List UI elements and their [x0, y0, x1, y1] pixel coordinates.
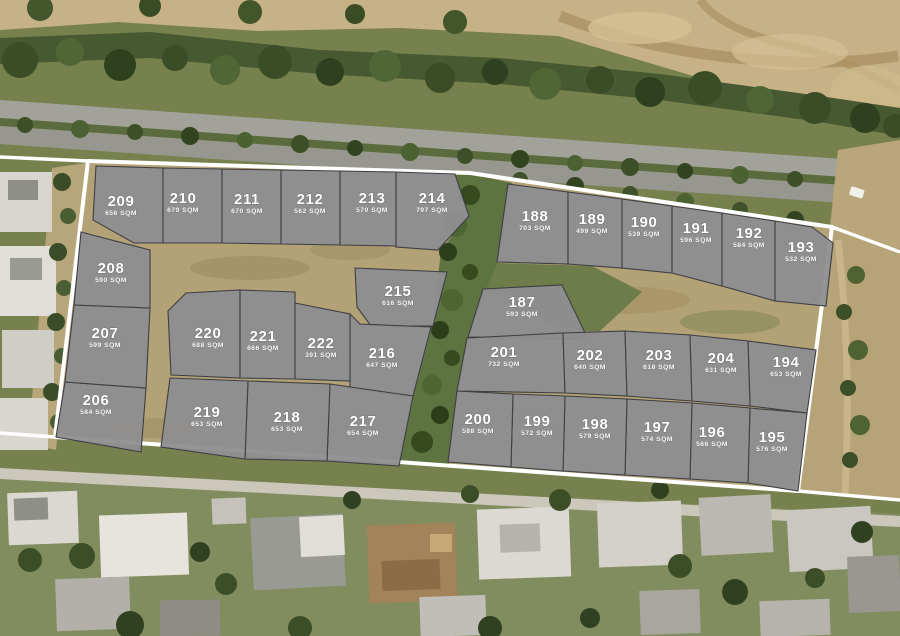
plot-area-label: 670 SQM: [231, 208, 263, 215]
site-plan-screenshot: 187593 SQM188703 SQM189499 SQM190539 SQM…: [0, 0, 900, 636]
plot-area-label: 653 SQM: [770, 371, 802, 378]
plot-number-label: 214: [419, 190, 446, 207]
plot-number-label: 190: [631, 214, 658, 231]
plot-number-label: 210: [170, 190, 197, 207]
plot-area-label: 732 SQM: [488, 361, 520, 368]
plot-195[interactable]: 195576 SQM: [748, 408, 807, 491]
plot-area-label: 499 SQM: [576, 228, 608, 235]
plot-204[interactable]: 204631 SQM: [690, 335, 750, 406]
plot-area-label: 532 SQM: [785, 256, 817, 263]
plot-number-label: 204: [708, 350, 735, 367]
plot-number-label: 208: [98, 260, 125, 277]
plot-213[interactable]: 213570 SQM: [340, 171, 396, 246]
plot-number-label: 197: [644, 419, 671, 436]
plot-area-label: 631 SQM: [705, 367, 737, 374]
plot-210[interactable]: 210679 SQM: [163, 168, 222, 243]
plot-202[interactable]: 202640 SQM: [563, 331, 627, 396]
plot-area-label: 703 SQM: [519, 225, 551, 232]
plot-number-label: 188: [522, 208, 549, 225]
plot-212[interactable]: 212562 SQM: [281, 170, 340, 245]
plot-number-label: 216: [369, 345, 396, 362]
plot-number-label: 199: [524, 413, 551, 430]
plot-215[interactable]: 215616 SQM: [355, 268, 447, 326]
plot-number-label: 217: [350, 413, 377, 430]
plot-area-label: 590 SQM: [95, 277, 127, 284]
plot-area-label: 654 SQM: [347, 430, 379, 437]
plot-number-label: 196: [699, 424, 726, 441]
plot-area-label: 666 SQM: [247, 345, 279, 352]
plot-number-label: 218: [274, 409, 301, 426]
plot-number-label: 219: [194, 404, 221, 421]
plot-area-label: 574 SQM: [641, 436, 673, 443]
plot-area-label: 562 SQM: [294, 208, 326, 215]
plot-194[interactable]: 194653 SQM: [748, 341, 816, 413]
plot-area-label: 688 SQM: [192, 342, 224, 349]
plot-200[interactable]: 200588 SQM: [448, 391, 513, 467]
plot-201[interactable]: 201732 SQM: [457, 333, 565, 393]
plot-number-label: 200: [465, 411, 492, 428]
plot-217[interactable]: 217654 SQM: [327, 384, 413, 466]
plot-197[interactable]: 197574 SQM: [625, 399, 692, 479]
plot-207[interactable]: 207599 SQM: [65, 305, 150, 388]
plot-number-label: 211: [234, 191, 260, 208]
plot-number-label: 206: [83, 392, 110, 409]
plot-area-label: 599 SQM: [89, 342, 121, 349]
plot-number-label: 192: [736, 225, 763, 242]
plot-number-label: 202: [577, 347, 604, 364]
plot-area-label: 576 SQM: [756, 446, 788, 453]
plot-area-label: 579 SQM: [579, 433, 611, 440]
plot-area-label: 653 SQM: [271, 426, 303, 433]
plot-196[interactable]: 196566 SQM: [690, 403, 750, 483]
plot-191-shape[interactable]: [672, 206, 722, 286]
plot-number-label: 220: [195, 325, 222, 342]
plot-area-label: 570 SQM: [356, 207, 388, 214]
plot-number-label: 212: [297, 191, 324, 208]
plot-area-label: 584 SQM: [80, 409, 112, 416]
plot-number-label: 207: [92, 325, 119, 342]
plot-number-label: 213: [359, 190, 386, 207]
plot-number-label: 209: [108, 193, 135, 210]
plot-area-label: 588 SQM: [462, 428, 494, 435]
plot-189[interactable]: 189499 SQM: [568, 192, 622, 268]
plot-220[interactable]: 220688 SQM: [168, 290, 240, 378]
plot-number-label: 195: [759, 429, 786, 446]
plot-number-label: 189: [579, 211, 606, 228]
plot-area-label: 391 SQM: [305, 352, 337, 359]
plot-number-label: 221: [250, 328, 277, 345]
plot-area-label: 653 SQM: [191, 421, 223, 428]
plot-area-label: 616 SQM: [382, 300, 414, 307]
plot-number-label: 193: [788, 239, 815, 256]
plot-area-label: 679 SQM: [167, 207, 199, 214]
plot-area-label: 656 SQM: [105, 210, 137, 217]
plot-area-label: 566 SQM: [696, 441, 728, 448]
plot-area-label: 584 SQM: [733, 242, 765, 249]
plot-221[interactable]: 221666 SQM: [240, 290, 295, 379]
plot-188[interactable]: 188703 SQM: [497, 184, 568, 264]
plot-218[interactable]: 218653 SQM: [245, 381, 330, 461]
plot-number-label: 215: [385, 283, 412, 300]
plot-219[interactable]: 219653 SQM: [161, 378, 248, 459]
plot-area-label: 596 SQM: [680, 237, 712, 244]
site-plan-map: 187593 SQM188703 SQM189499 SQM190539 SQM…: [0, 0, 900, 636]
plot-number-label: 203: [646, 347, 673, 364]
plot-198[interactable]: 198579 SQM: [563, 396, 627, 475]
plot-192[interactable]: 192584 SQM: [722, 213, 775, 301]
plot-area-label: 572 SQM: [521, 430, 553, 437]
plot-number-label: 191: [683, 220, 710, 237]
plot-203[interactable]: 203618 SQM: [625, 331, 692, 401]
plot-area-label: 647 SQM: [366, 362, 398, 369]
plot-number-label: 187: [509, 294, 536, 311]
plot-191[interactable]: 191596 SQM: [672, 206, 722, 286]
plot-area-label: 593 SQM: [506, 311, 538, 318]
plot-area-label: 640 SQM: [574, 364, 606, 371]
plot-number-label: 222: [308, 335, 335, 352]
plot-area-label: 539 SQM: [628, 231, 660, 238]
plot-190[interactable]: 190539 SQM: [622, 199, 672, 273]
plot-199[interactable]: 199572 SQM: [511, 394, 565, 471]
plot-222[interactable]: 222391 SQM: [295, 303, 350, 381]
plot-number-label: 194: [773, 354, 800, 371]
plot-number-label: 201: [491, 344, 518, 361]
plot-area-label: 618 SQM: [643, 364, 675, 371]
plot-number-label: 198: [582, 416, 609, 433]
plot-211[interactable]: 211670 SQM: [222, 169, 281, 244]
plot-area-label: 797 SQM: [416, 207, 448, 214]
